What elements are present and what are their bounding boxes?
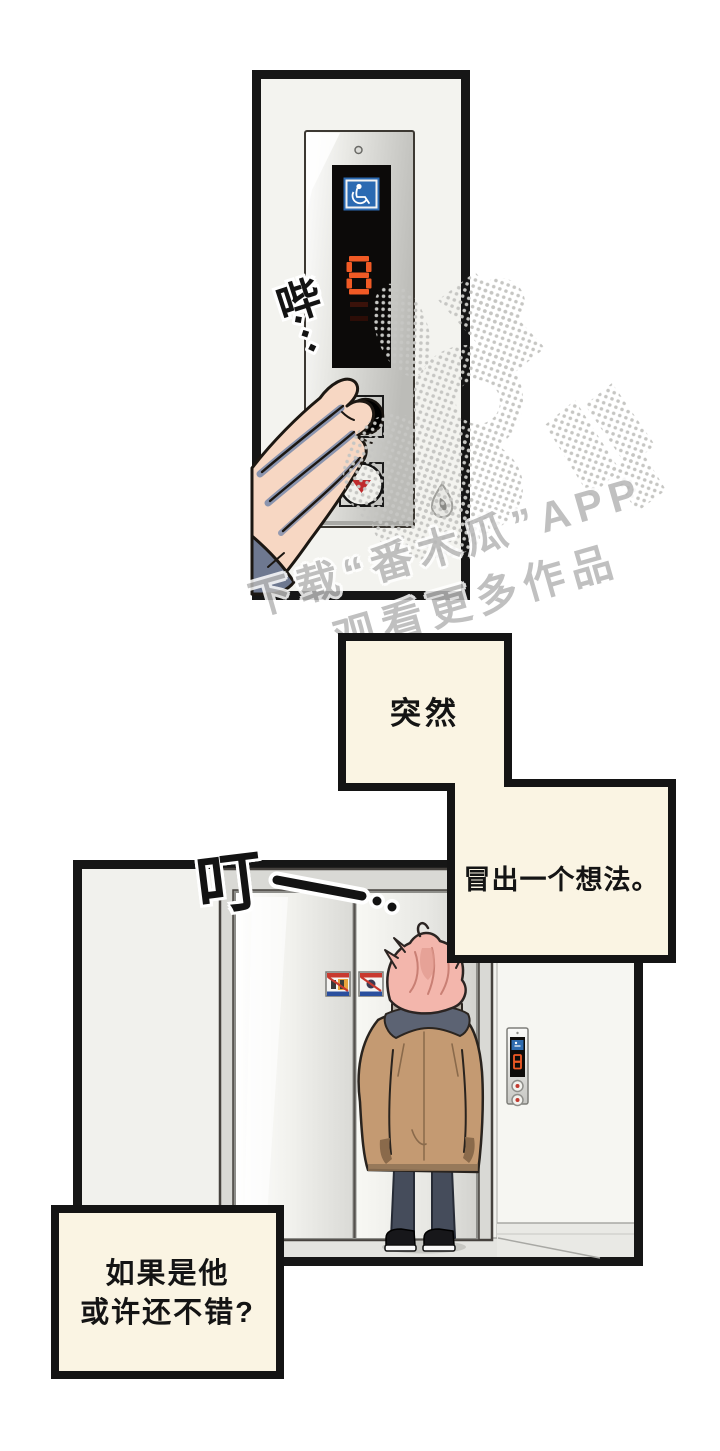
caption-thought-line1: 如果是他 bbox=[51, 1255, 284, 1294]
caption-suddenly: 突然 bbox=[342, 688, 508, 733]
caption-idea: 冒出一个想法。 bbox=[451, 858, 672, 897]
caption-box-top bbox=[342, 637, 672, 959]
comic-page: 下载“番木瓜”APP 观看更多作品 突然 冒出一个想法。 如果是他 或许还不错?… bbox=[0, 0, 720, 1451]
caption-thought: 如果是他 或许还不错? bbox=[51, 1255, 284, 1333]
caption-thought-line2: 或许还不错? bbox=[51, 1294, 284, 1333]
sfx-ding: 叮 bbox=[190, 826, 267, 929]
